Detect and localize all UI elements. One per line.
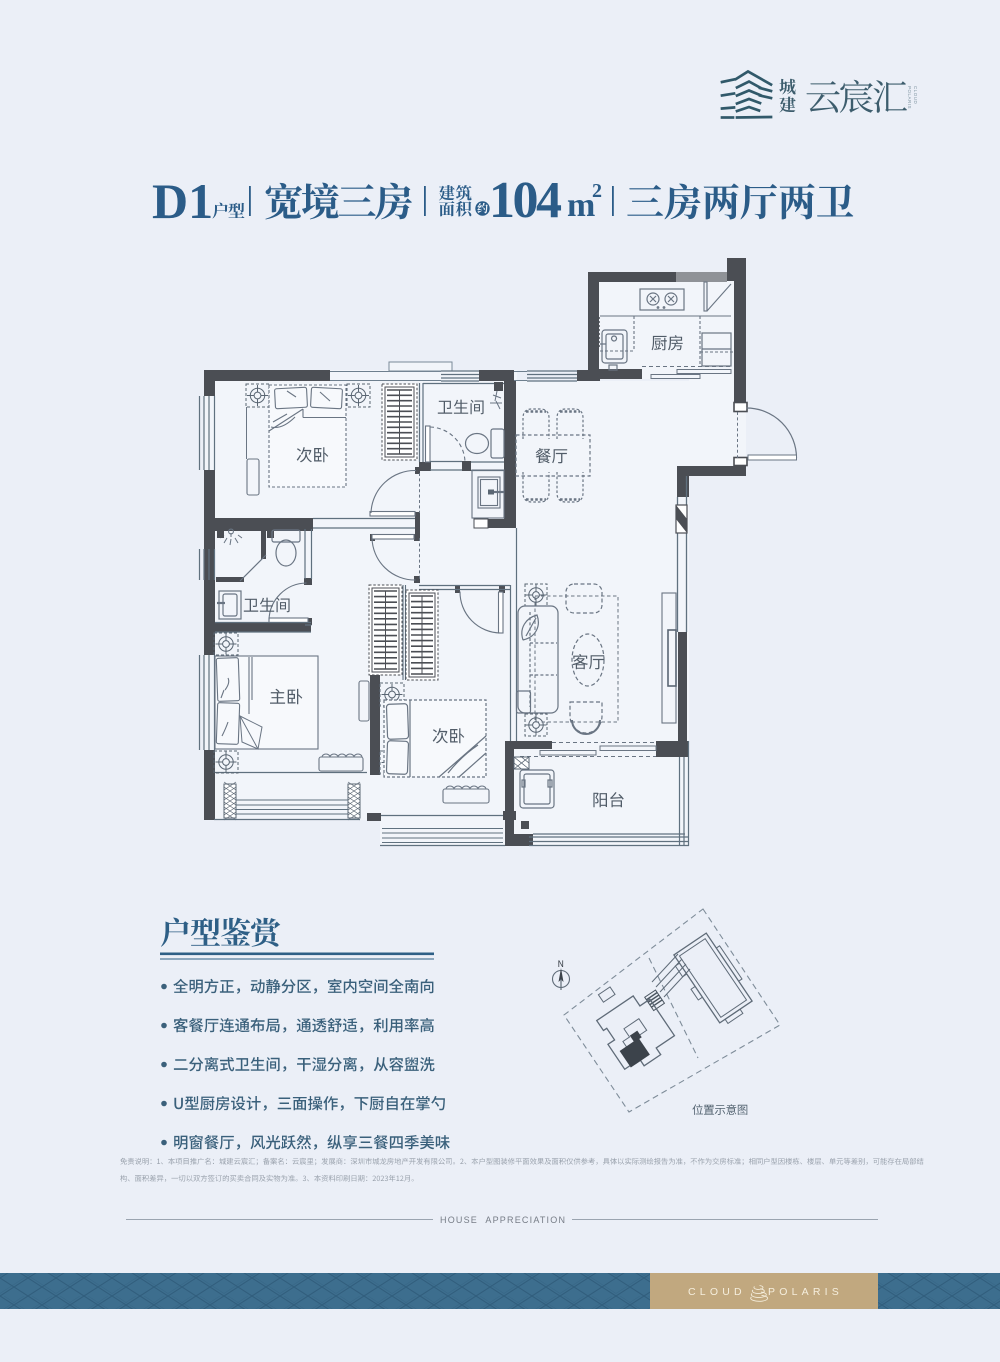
svg-text:CLOUD: CLOUD: [688, 1286, 746, 1298]
svg-text:POLARIS: POLARIS: [907, 86, 912, 109]
svg-text:D1: D1: [152, 173, 213, 229]
svg-text:104: 104: [489, 172, 562, 229]
svg-text:2: 2: [592, 180, 602, 202]
svg-text:HOUSE APPRECIATION: HOUSE APPRECIATION: [440, 1215, 566, 1225]
svg-text:CLOUD: CLOUD: [913, 86, 918, 105]
svg-text:POLARIS: POLARIS: [768, 1286, 843, 1298]
